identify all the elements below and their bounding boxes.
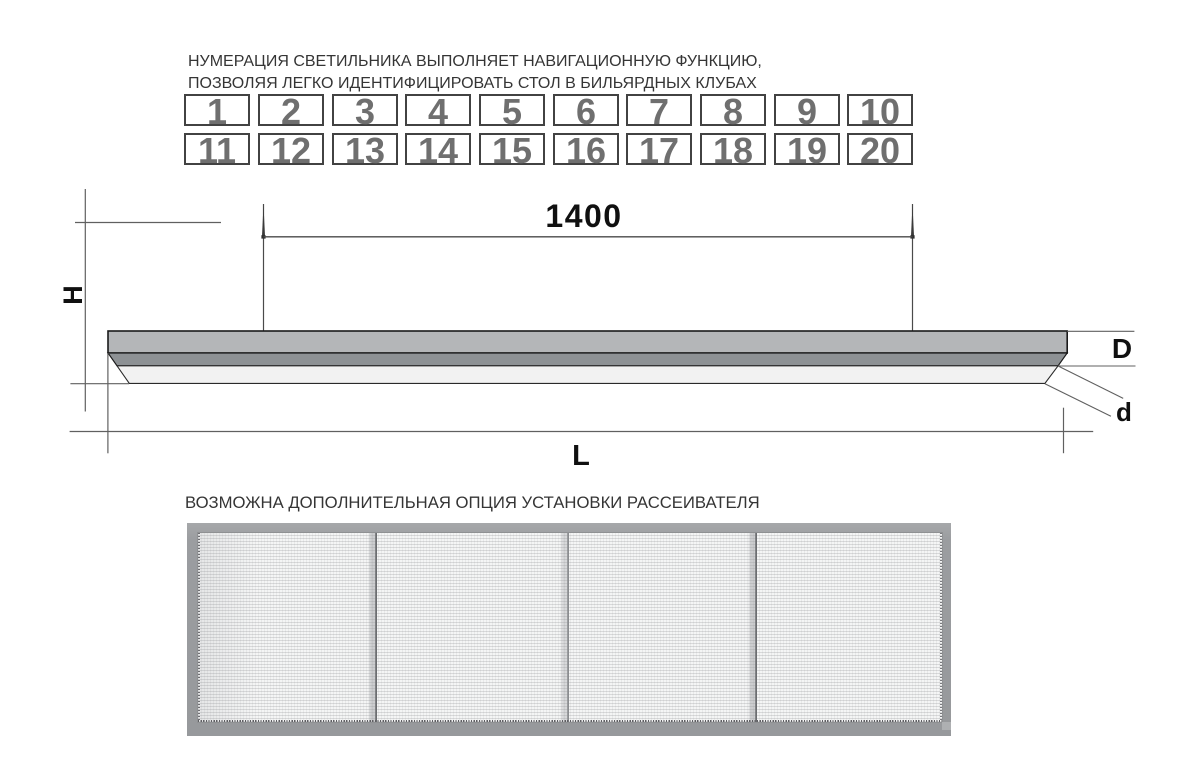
svg-text:L: L bbox=[572, 440, 590, 472]
svg-text:H: H bbox=[58, 285, 88, 305]
svg-text:d: d bbox=[1116, 397, 1132, 427]
svg-text:1400: 1400 bbox=[545, 198, 622, 234]
svg-text:D: D bbox=[1112, 333, 1132, 364]
